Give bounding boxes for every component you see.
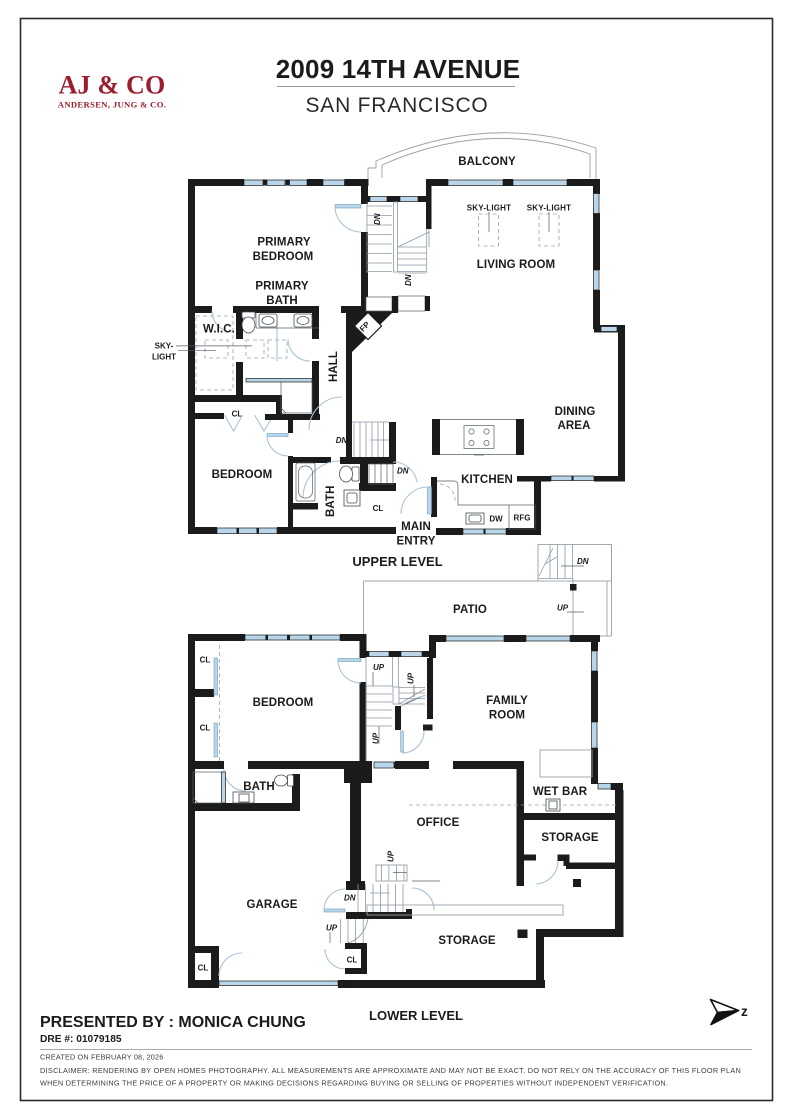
svg-text:ROOM: ROOM	[489, 710, 525, 722]
svg-text:SAN FRANCISCO: SAN FRANCISCO	[305, 94, 488, 117]
svg-text:HALL: HALL	[328, 351, 340, 382]
svg-text:BEDROOM: BEDROOM	[212, 469, 273, 481]
svg-text:UP: UP	[557, 604, 569, 613]
svg-text:LIVING ROOM: LIVING ROOM	[477, 259, 555, 271]
svg-text:WET BAR: WET BAR	[533, 786, 588, 798]
svg-text:PRIMARY: PRIMARY	[257, 237, 311, 249]
svg-text:PRESENTED BY : MONICA CHUNG: PRESENTED BY : MONICA CHUNG	[40, 1014, 306, 1031]
svg-text:DW: DW	[489, 515, 503, 524]
svg-text:MAIN: MAIN	[401, 521, 431, 533]
svg-text:ANDERSEN, JUNG & CO.: ANDERSEN, JUNG & CO.	[58, 100, 166, 110]
svg-text:CL: CL	[373, 504, 384, 513]
svg-text:UP: UP	[387, 850, 396, 862]
svg-text:UP: UP	[407, 672, 416, 684]
svg-text:KITCHEN: KITCHEN	[461, 474, 513, 486]
svg-text:BEDROOM: BEDROOM	[253, 697, 314, 709]
svg-text:UP: UP	[326, 924, 338, 933]
svg-text:DN: DN	[336, 436, 348, 445]
svg-text:2009 14TH AVENUE: 2009 14TH AVENUE	[276, 54, 521, 84]
svg-text:DN: DN	[373, 213, 382, 225]
svg-text:AJ & CO: AJ & CO	[59, 71, 166, 100]
svg-text:DISCLAIMER: RENDERING BY OPEN: DISCLAIMER: RENDERING BY OPEN HOMES PHOT…	[40, 1066, 741, 1075]
svg-text:W.I.C.: W.I.C.	[203, 324, 235, 336]
svg-text:UP: UP	[373, 663, 385, 672]
svg-text:SKY-LIGHT: SKY-LIGHT	[467, 204, 511, 213]
svg-text:CL: CL	[200, 656, 211, 665]
svg-text:PRIMARY: PRIMARY	[255, 281, 309, 293]
svg-text:ENTRY: ENTRY	[396, 536, 435, 548]
svg-text:WHEN DETERMINING THE PRICE OF: WHEN DETERMINING THE PRICE OF A PROPERTY…	[40, 1079, 668, 1088]
svg-text:CL: CL	[347, 956, 358, 965]
svg-text:CL: CL	[200, 724, 211, 733]
svg-text:BATH: BATH	[325, 486, 337, 518]
svg-text:DN: DN	[397, 467, 409, 476]
svg-text:LOWER LEVEL: LOWER LEVEL	[369, 1008, 463, 1023]
svg-text:BEDROOM: BEDROOM	[253, 251, 314, 263]
svg-text:LIGHT: LIGHT	[152, 353, 176, 362]
svg-text:STORAGE: STORAGE	[438, 935, 496, 947]
svg-text:AREA: AREA	[558, 420, 591, 432]
svg-text:SKY-: SKY-	[155, 342, 174, 351]
svg-text:PATIO: PATIO	[453, 604, 487, 616]
svg-text:DN: DN	[344, 894, 356, 903]
svg-text:DRE #: 01079185: DRE #: 01079185	[40, 1034, 122, 1045]
svg-text:RFG: RFG	[514, 514, 531, 523]
svg-text:OFFICE: OFFICE	[417, 817, 460, 829]
svg-text:BALCONY: BALCONY	[458, 156, 516, 168]
svg-text:SKY-LIGHT: SKY-LIGHT	[527, 204, 571, 213]
svg-text:z: z	[741, 1004, 748, 1019]
svg-text:DINING: DINING	[555, 406, 596, 418]
svg-text:CREATED ON FEBRUARY 08, 2026: CREATED ON FEBRUARY 08, 2026	[40, 1053, 163, 1062]
svg-text:DN: DN	[404, 274, 413, 286]
svg-text:DN: DN	[577, 557, 589, 566]
svg-text:GARAGE: GARAGE	[246, 899, 297, 911]
svg-text:UPPER LEVEL: UPPER LEVEL	[352, 554, 442, 569]
svg-text:CL: CL	[198, 964, 209, 973]
svg-text:BATH: BATH	[266, 295, 298, 307]
svg-text:BATH: BATH	[243, 781, 275, 793]
svg-text:FAMILY: FAMILY	[486, 695, 528, 707]
svg-text:STORAGE: STORAGE	[541, 832, 599, 844]
